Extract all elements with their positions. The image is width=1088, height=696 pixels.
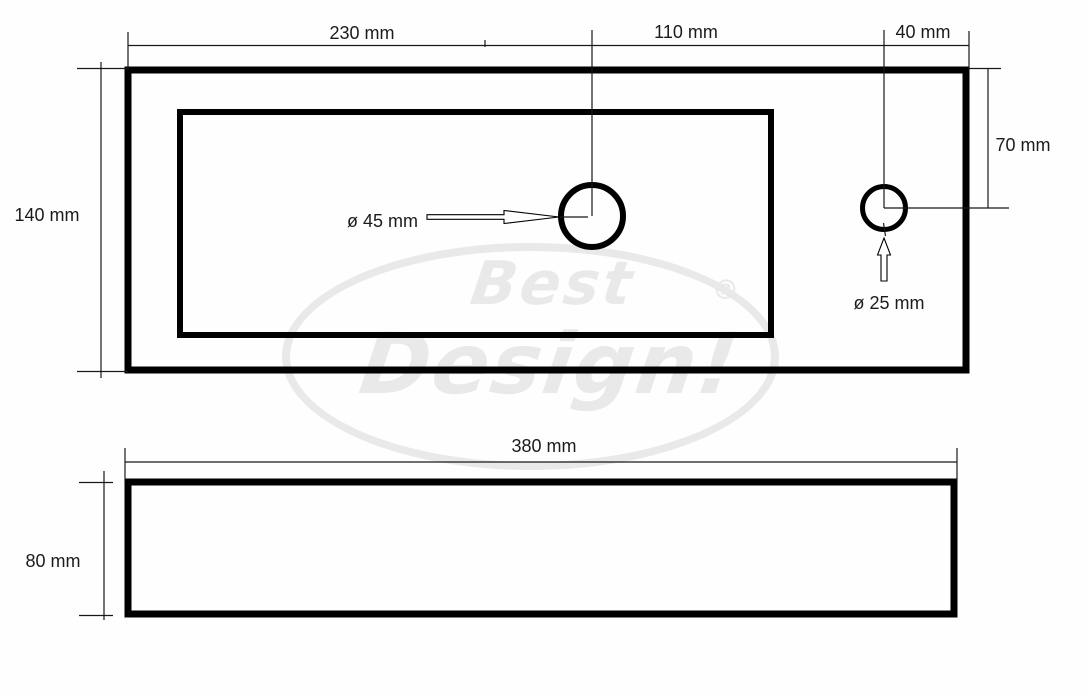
dimension-drawing-svg: 230 mm 110 mm 40 mm 140 mm 70 mm ø 45 mm… [0,0,1088,696]
front-view-outline [128,482,954,614]
dim-label-tap-hole: ø 25 mm [853,293,924,313]
dim-label-width-mid: 110 mm [654,22,718,42]
dim-label-front-height: 80 mm [25,551,80,571]
drain-leader-arrow-icon [427,211,559,224]
dim-label-width-left: 230 mm [329,23,394,43]
dim-label-width-right: 40 mm [895,22,950,42]
dim-label-front-width: 380 mm [511,436,576,456]
dim-label-height-left: 140 mm [14,205,79,225]
technical-drawing: Best Design! ® 230 mm 110 mm 40 mm 140 m… [0,0,1088,696]
basin-outline [180,112,771,335]
dim-label-drain-hole: ø 45 mm [347,211,418,231]
dim-label-hole-offset: 70 mm [995,135,1050,155]
tap-leader-arrow-icon [878,238,891,281]
